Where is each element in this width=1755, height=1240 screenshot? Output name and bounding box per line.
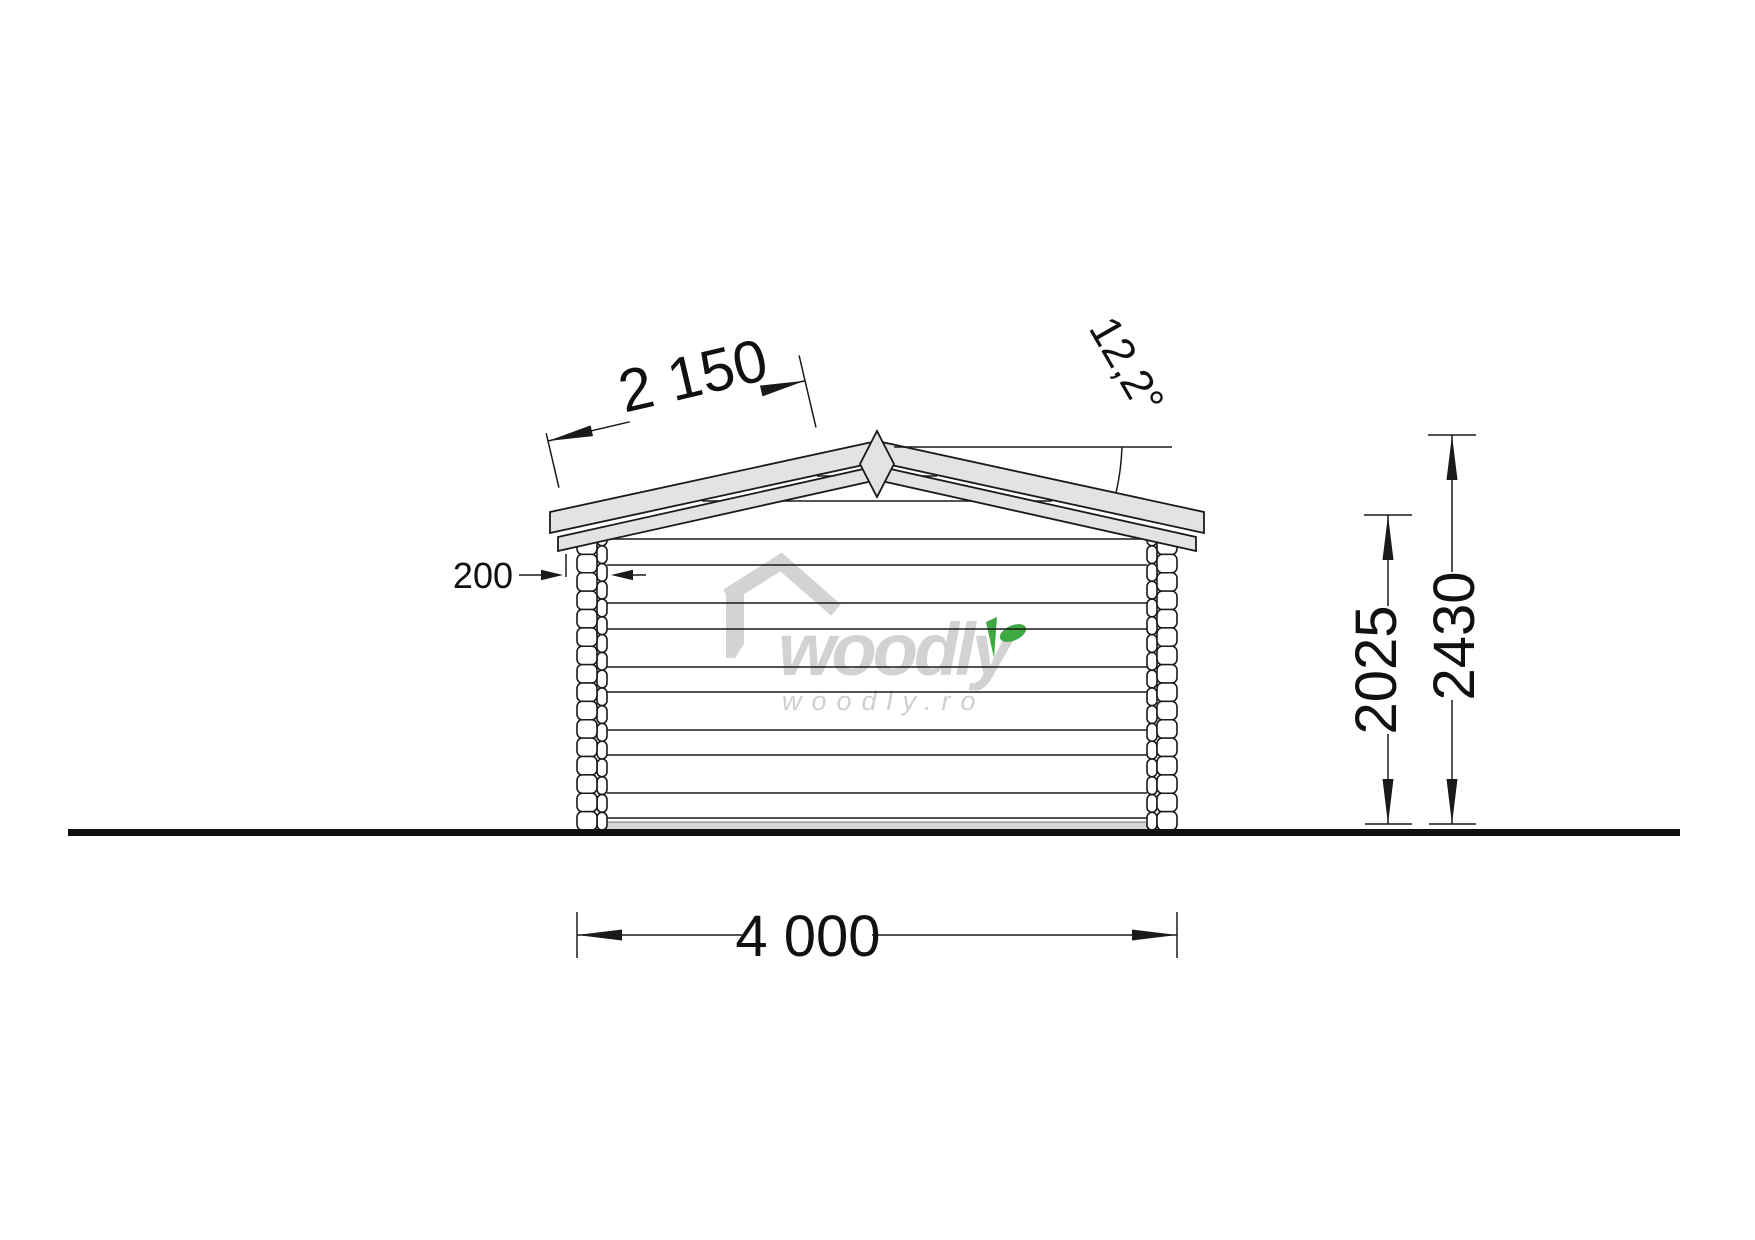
log-course <box>597 599 607 617</box>
log-course <box>577 646 597 664</box>
wall-height-label: 2025 <box>1344 605 1409 734</box>
log-course <box>597 670 607 688</box>
log-course <box>597 564 607 582</box>
log-course <box>577 683 597 701</box>
log-course <box>577 628 597 646</box>
log-course <box>1147 688 1157 706</box>
log-course <box>597 546 607 564</box>
watermark-url: woodly.ro <box>782 686 986 716</box>
log-course <box>1157 775 1177 793</box>
log-course <box>597 723 607 741</box>
ground-line <box>68 829 1680 836</box>
log-course <box>577 738 597 756</box>
log-course <box>577 665 597 683</box>
log-course <box>1147 723 1157 741</box>
dimension-log-thickness: 200 <box>453 554 646 596</box>
log-course <box>577 793 597 811</box>
log-course <box>597 812 607 830</box>
log-course <box>597 688 607 706</box>
log-course <box>1157 646 1177 664</box>
roof-angle-label: 12,2° <box>1079 309 1173 423</box>
drawing-canvas: woodly woodly.ro 4 000 2025 <box>0 0 1755 1240</box>
log-course <box>577 610 597 628</box>
roof-length-label: 2 150 <box>612 326 773 426</box>
log-course <box>1157 628 1177 646</box>
log-course <box>1157 554 1177 572</box>
log-course <box>597 617 607 635</box>
log-course <box>577 573 597 591</box>
log-course <box>597 795 607 813</box>
cabin-elevation-drawing: woodly woodly.ro 4 000 2025 <box>0 0 1755 1240</box>
log-course <box>1157 738 1177 756</box>
log-course <box>1157 720 1177 738</box>
log-course <box>1157 793 1177 811</box>
log-course <box>1147 759 1157 777</box>
ridge-finial <box>860 431 894 497</box>
log-course <box>1157 683 1177 701</box>
log-course <box>1147 581 1157 599</box>
log-course <box>1147 652 1157 670</box>
log-course <box>577 554 597 572</box>
log-course <box>597 759 607 777</box>
log-course <box>597 706 607 724</box>
log-course <box>597 652 607 670</box>
log-course <box>597 635 607 653</box>
log-course <box>1157 812 1177 830</box>
log-course <box>597 741 607 759</box>
log-course <box>1147 741 1157 759</box>
log-course <box>1157 701 1177 719</box>
log-course <box>1147 670 1157 688</box>
dimension-width: 4 000 <box>577 904 1177 969</box>
angle-arc <box>1116 447 1122 493</box>
log-course <box>1147 546 1157 564</box>
total-height-label: 2430 <box>1422 571 1487 700</box>
log-course <box>1147 706 1157 724</box>
log-course <box>1147 564 1157 582</box>
log-course <box>1157 665 1177 683</box>
dimension-wall-height: 2025 <box>1344 515 1412 824</box>
log-course <box>1157 757 1177 775</box>
log-course <box>577 720 597 738</box>
width-label: 4 000 <box>735 904 880 969</box>
log-course <box>1147 599 1157 617</box>
log-course <box>1147 777 1157 795</box>
roof <box>550 431 1204 551</box>
log-course <box>597 581 607 599</box>
log-course <box>1147 795 1157 813</box>
log-course <box>1147 812 1157 830</box>
dimension-roof-length: 2 150 <box>533 318 816 487</box>
log-course <box>1147 617 1157 635</box>
log-course <box>1157 610 1177 628</box>
log-course <box>577 701 597 719</box>
dimension-total-height: 2430 <box>1422 435 1487 824</box>
log-course <box>1157 591 1177 609</box>
log-course <box>577 775 597 793</box>
log-course <box>1157 573 1177 591</box>
log-thickness-label: 200 <box>453 555 513 596</box>
log-course <box>1147 635 1157 653</box>
watermark: woodly woodly.ro <box>726 562 1029 716</box>
foundation-strip <box>580 822 1160 830</box>
log-course <box>577 812 597 830</box>
log-course <box>577 757 597 775</box>
log-course <box>597 777 607 795</box>
watermark-brand: woodly <box>778 608 1017 691</box>
log-course <box>577 591 597 609</box>
